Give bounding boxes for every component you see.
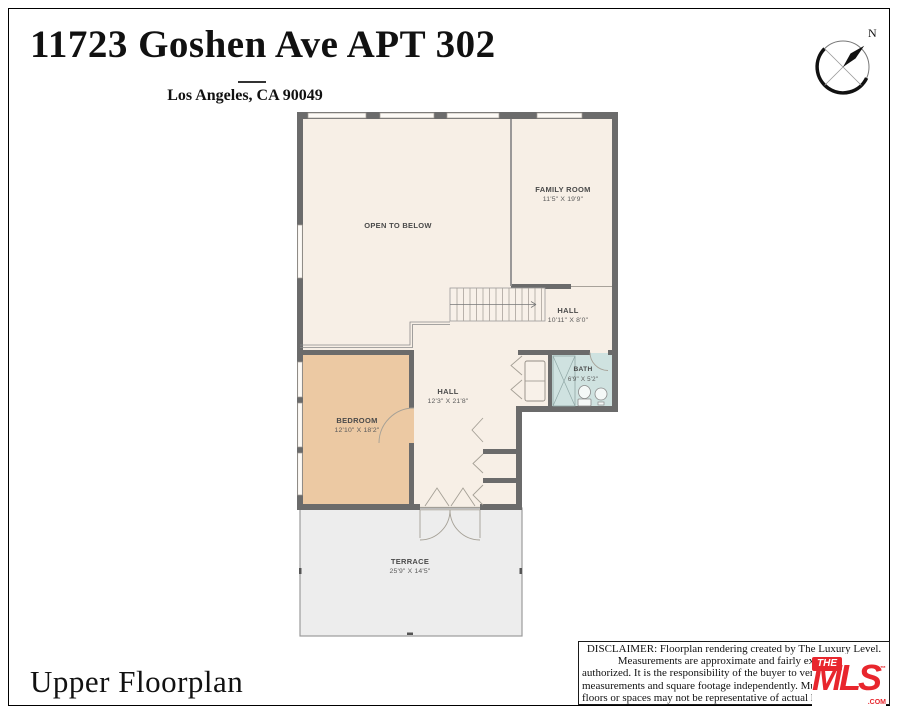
themls-logo: MLS THE ™ .COM (812, 654, 886, 708)
themls-logo-trademark: ™ (880, 666, 886, 672)
page-title: 11723 Goshen Ave APT 302 (30, 22, 460, 67)
floorplan: OPEN TO BELOW FAMILY ROOM 11'5" X 19'9" … (285, 103, 625, 643)
sink (595, 388, 607, 400)
themls-logo-the-badge: THE (812, 657, 842, 671)
compass-north-label: N (868, 26, 877, 40)
themls-logo-com-text: .COM (868, 699, 886, 706)
toilet-tank (578, 399, 591, 406)
toilet-bowl (579, 386, 591, 399)
room-label-bath: BATH 6'9" X 5'2" (568, 365, 598, 385)
compass-icon: N (806, 20, 886, 106)
header: 11723 Goshen Ave APT 302 (30, 22, 460, 67)
room-label-terrace: TERRACE 25'9" X 14'5" (389, 557, 430, 577)
room-label-hall-upper: HALL 10'11" X 8'0" (548, 306, 589, 326)
floorplan-level-title: Upper Floorplan (30, 664, 243, 700)
room-label-bedroom: BEDROOM 12'10" X 18'2" (335, 416, 380, 436)
stairs (450, 288, 545, 321)
room-label-open-to-below: OPEN TO BELOW (364, 221, 432, 231)
closet-cabinet (525, 361, 545, 401)
room-label-family-room: FAMILY ROOM 11'5" X 19'9" (535, 185, 590, 205)
room-label-hall-lower: HALL 12'3" X 21'8" (427, 387, 468, 407)
title-divider (238, 81, 266, 83)
